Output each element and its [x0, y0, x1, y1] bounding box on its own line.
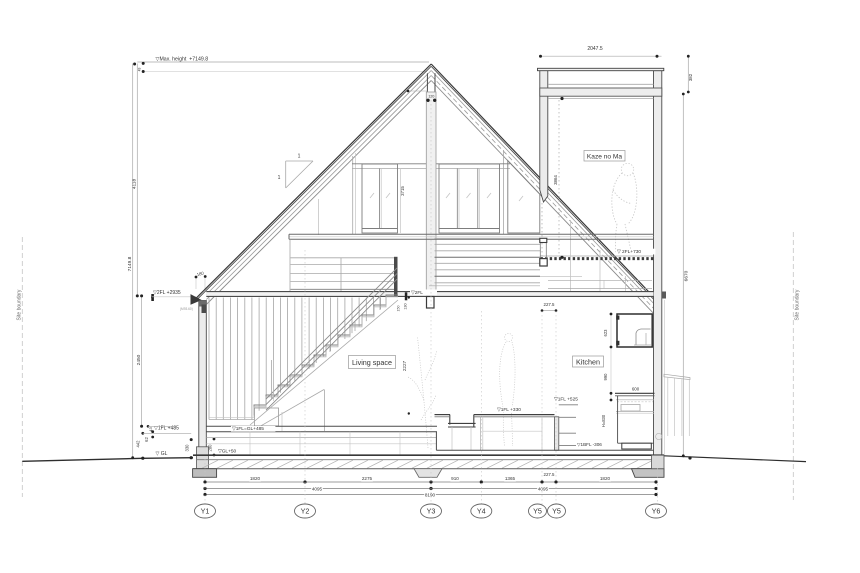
svg-text:227.5: 227.5 — [544, 472, 556, 477]
svg-text:1: 1 — [298, 154, 301, 160]
svg-text:2227: 2227 — [402, 360, 407, 371]
svg-text:▽ GL: ▽ GL — [156, 451, 168, 457]
svg-text:4118: 4118 — [132, 179, 138, 190]
svg-text:910: 910 — [451, 476, 459, 481]
svg-text:Site boundary: Site boundary — [795, 289, 801, 320]
svg-text:623: 623 — [603, 329, 608, 337]
svg-text:2275: 2275 — [362, 476, 373, 481]
svg-text:▽GL+50: ▽GL+50 — [218, 449, 237, 455]
svg-text:▽1FL=GL+485: ▽1FL=GL+485 — [232, 426, 264, 432]
svg-text:1: 1 — [278, 175, 281, 181]
svg-text:(M93.60): (M93.60) — [180, 307, 193, 311]
svg-text:2450: 2450 — [136, 354, 142, 365]
svg-text:442: 442 — [136, 440, 141, 448]
svg-text:Y3: Y3 — [427, 507, 436, 516]
svg-text:Y4: Y4 — [477, 507, 486, 516]
svg-text:990: 990 — [603, 373, 608, 381]
svg-text:Y2: Y2 — [301, 507, 310, 516]
svg-text:Y1: Y1 — [201, 507, 210, 516]
svg-text:1820: 1820 — [250, 476, 261, 481]
svg-text:6670: 6670 — [683, 270, 689, 281]
svg-text:120: 120 — [428, 95, 434, 99]
svg-text:Kitchen: Kitchen — [576, 357, 600, 366]
svg-text:3715: 3715 — [400, 186, 405, 196]
svg-text:3864: 3864 — [553, 175, 558, 185]
svg-text:Y5: Y5 — [552, 507, 561, 516]
svg-text:Kaze no Ma: Kaze no Ma — [587, 153, 623, 160]
svg-text:130: 130 — [403, 303, 407, 309]
svg-text:▽ 2FL+730: ▽ 2FL+730 — [617, 249, 641, 255]
svg-text:330: 330 — [185, 444, 190, 452]
svg-text:600: 600 — [632, 386, 640, 391]
svg-text:▽2FL +2935: ▽2FL +2935 — [153, 290, 181, 296]
svg-text:2047.5: 2047.5 — [587, 46, 603, 52]
svg-text:▽1FL +525: ▽1FL +525 — [554, 397, 578, 403]
svg-text:8190: 8190 — [425, 493, 436, 498]
svg-text:7149.8: 7149.8 — [127, 256, 133, 271]
svg-text:1365: 1365 — [505, 476, 516, 481]
svg-text:Y6: Y6 — [652, 507, 661, 516]
svg-text:Y5: Y5 — [533, 507, 542, 516]
svg-text:Site boundary: Site boundary — [17, 289, 23, 320]
svg-text:382: 382 — [688, 73, 693, 81]
svg-text:▽2FL: ▽2FL — [411, 290, 423, 296]
svg-text:▽1BFL -306: ▽1BFL -306 — [577, 442, 602, 447]
svg-text:62: 62 — [144, 437, 149, 442]
svg-text:150: 150 — [397, 306, 401, 312]
svg-text:4095: 4095 — [312, 487, 323, 492]
svg-text:227.5: 227.5 — [544, 302, 556, 307]
svg-text:▽Max. height +7149.8: ▽Max. height +7149.8 — [156, 56, 209, 62]
svg-text:Living space: Living space — [352, 358, 392, 367]
svg-text:H=830: H=830 — [601, 414, 606, 427]
svg-text:4095: 4095 — [538, 487, 549, 492]
svg-text:▽1FL +330: ▽1FL +330 — [497, 407, 521, 413]
svg-text:1820: 1820 — [600, 476, 611, 481]
svg-text:43: 43 — [138, 68, 142, 72]
